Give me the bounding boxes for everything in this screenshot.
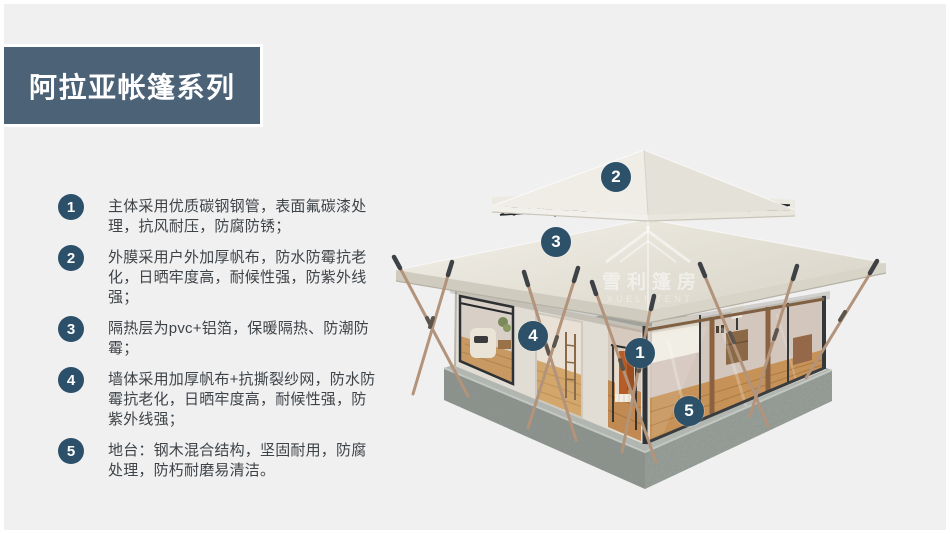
watermark-cn-text: 雪利篷房 (602, 270, 702, 293)
page-title: 阿拉亚帐篷系列 (3, 66, 236, 106)
feature-text: 外膜采用户外加厚帆布，防水防霉抗老化，日晒牢度高，耐候性强，防紫外线强； (108, 248, 376, 308)
top-roof (492, 150, 795, 221)
slide: 阿拉亚帐篷系列 1 主体采用优质碳钢钢管，表面氟碳漆处理，抗风耐压，防腐防锈； … (0, 0, 950, 534)
watermark-en-text: XUELI TENT (607, 294, 694, 304)
tent-callout-4: 4 (518, 321, 548, 351)
feature-number-badge: 5 (58, 438, 84, 464)
feature-number-badge: 3 (58, 316, 84, 342)
feature-item-3: 3 隔热层为pvc+铝箔，保暖隔热、防潮防霉； (58, 319, 378, 359)
feature-number-badge: 1 (58, 194, 84, 220)
tent-callout-1: 1 (625, 338, 655, 368)
tent-render: 雪利篷房 XUELI TENT (390, 128, 950, 508)
feature-text: 隔热层为pvc+铝箔，保暖隔热、防潮防霉； (108, 319, 376, 359)
feature-text: 主体采用优质碳钢钢管，表面氟碳漆处理，抗风耐压，防腐防锈； (108, 197, 376, 237)
feature-item-2: 2 外膜采用户外加厚帆布，防水防霉抗老化，日晒牢度高，耐候性强，防紫外线强； (58, 248, 378, 308)
feature-text: 墙体采用加厚帆布+抗撕裂纱网，防水防霉抗老化，日晒牢度高，耐候性强，防紫外线强； (108, 370, 376, 430)
feature-item-1: 1 主体采用优质碳钢钢管，表面氟碳漆处理，抗风耐压，防腐防锈； (58, 197, 378, 237)
feature-number-badge: 2 (58, 245, 84, 271)
feature-item-5: 5 地台：钢木混合结构，坚固耐用，防腐处理，防朽耐磨易清洁。 (58, 441, 378, 481)
tent-callout-2: 2 (601, 162, 631, 192)
feature-number-badge: 4 (58, 367, 84, 393)
tent-callout-3: 3 (541, 227, 571, 257)
tent-callout-5: 5 (674, 396, 704, 426)
title-banner: 阿拉亚帐篷系列 (0, 44, 263, 127)
tent-illustration: 雪利篷房 XUELI TENT (390, 128, 950, 508)
feature-text: 地台：钢木混合结构，坚固耐用，防腐处理，防朽耐磨易清洁。 (108, 441, 376, 481)
feature-item-4: 4 墙体采用加厚帆布+抗撕裂纱网，防水防霉抗老化，日晒牢度高，耐候性强，防紫外线… (58, 370, 378, 430)
feature-list: 1 主体采用优质碳钢钢管，表面氟碳漆处理，抗风耐压，防腐防锈； 2 外膜采用户外… (58, 197, 378, 481)
